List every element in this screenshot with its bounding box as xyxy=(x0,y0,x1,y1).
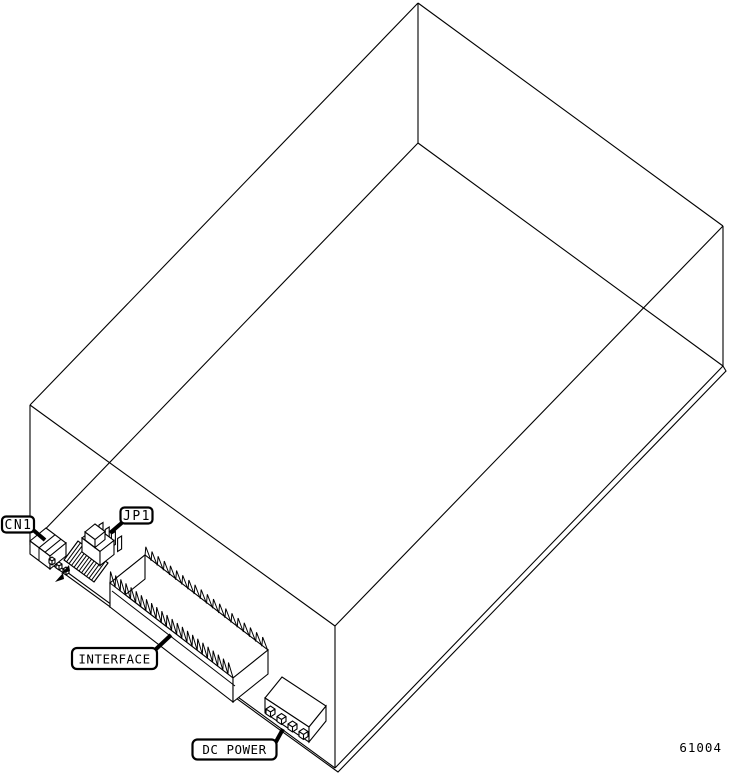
cn1-connector xyxy=(30,528,70,582)
dc-power-callout-label: DC POWER xyxy=(202,742,266,757)
chassis-top-back-right-edge xyxy=(418,3,723,226)
cn1-callout: CN1 xyxy=(2,517,45,541)
figure-number: 61004 xyxy=(679,740,722,755)
drawing-svg: CN1 JP1 INTERFACE DC POWER 61004 xyxy=(0,0,730,773)
chassis-bottom-back-right-edge xyxy=(418,143,723,366)
technical-drawing-canvas: CN1 JP1 INTERFACE DC POWER 61004 xyxy=(0,0,730,773)
jp1-callout-label: JP1 xyxy=(123,509,151,524)
cn1-callout-label: CN1 xyxy=(5,518,33,533)
interface-connector xyxy=(110,547,268,702)
dc-power-connector xyxy=(265,677,326,742)
dc-power-callout: DC POWER xyxy=(193,729,284,760)
interface-callout-label: INTERFACE xyxy=(78,652,150,667)
jp1-callout: JP1 xyxy=(110,508,153,534)
